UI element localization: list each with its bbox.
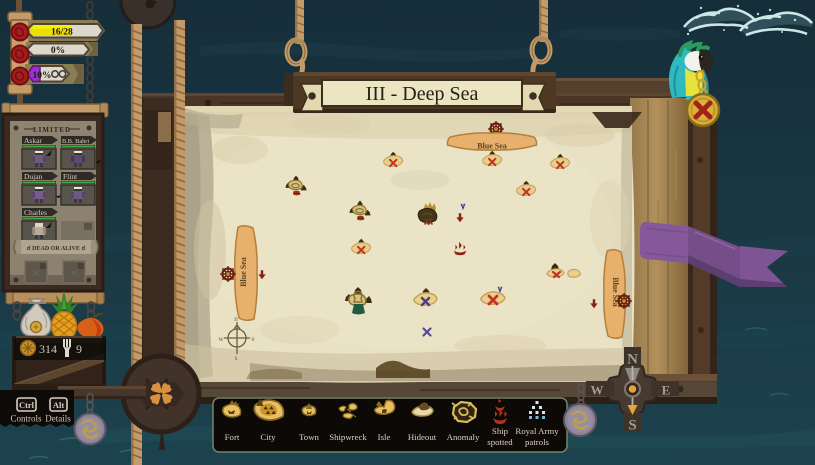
svg-text:Town: Town	[299, 432, 320, 442]
svg-text:W: W	[591, 383, 604, 398]
svg-text:10%: 10%	[33, 71, 52, 81]
svg-text:E: E	[662, 383, 671, 398]
svg-text:Askar: Askar	[24, 136, 42, 145]
svg-text:Details: Details	[45, 414, 71, 424]
svg-text:Royal Army: Royal Army	[515, 426, 559, 436]
svg-text:Flint: Flint	[63, 172, 78, 181]
svg-text:Isle: Isle	[378, 432, 391, 442]
svg-text:s: s	[235, 354, 238, 362]
svg-text:w: w	[218, 335, 224, 343]
svg-text:Controls: Controls	[10, 414, 42, 424]
svg-text:Hideout: Hideout	[408, 432, 437, 442]
svg-text:Blue Sea: Blue Sea	[239, 257, 248, 287]
svg-text:Blue Sea: Blue Sea	[477, 142, 507, 151]
svg-text:Ctrl: Ctrl	[19, 400, 35, 410]
svg-text:Charles: Charles	[24, 208, 47, 217]
svg-text:16/28: 16/28	[51, 28, 73, 38]
svg-text:LIMITED: LIMITED	[33, 126, 71, 134]
svg-text:Ship: Ship	[492, 426, 509, 436]
svg-text:Alt: Alt	[53, 400, 65, 410]
svg-text:Anomaly: Anomaly	[447, 432, 480, 442]
svg-text:Shipwreck: Shipwreck	[329, 432, 367, 442]
svg-text:n: n	[234, 315, 238, 323]
svg-text:spotted: spotted	[487, 437, 513, 447]
svg-text:S: S	[628, 418, 636, 434]
svg-text:0%: 0%	[51, 46, 65, 56]
svg-text:B.B. Bahri: B.B. Bahri	[62, 138, 89, 145]
svg-text:314: 314	[39, 342, 57, 356]
svg-text:patrols: patrols	[525, 437, 550, 447]
svg-text:Dujan: Dujan	[24, 172, 43, 181]
svg-text:e: e	[251, 335, 254, 343]
svg-text:Fort: Fort	[225, 432, 240, 442]
svg-text:City: City	[260, 432, 276, 442]
svg-text:☌ DEAD OR ALIVE ☌: ☌ DEAD OR ALIVE ☌	[27, 245, 86, 252]
svg-text:9: 9	[76, 342, 82, 356]
svg-text:N: N	[627, 352, 638, 368]
